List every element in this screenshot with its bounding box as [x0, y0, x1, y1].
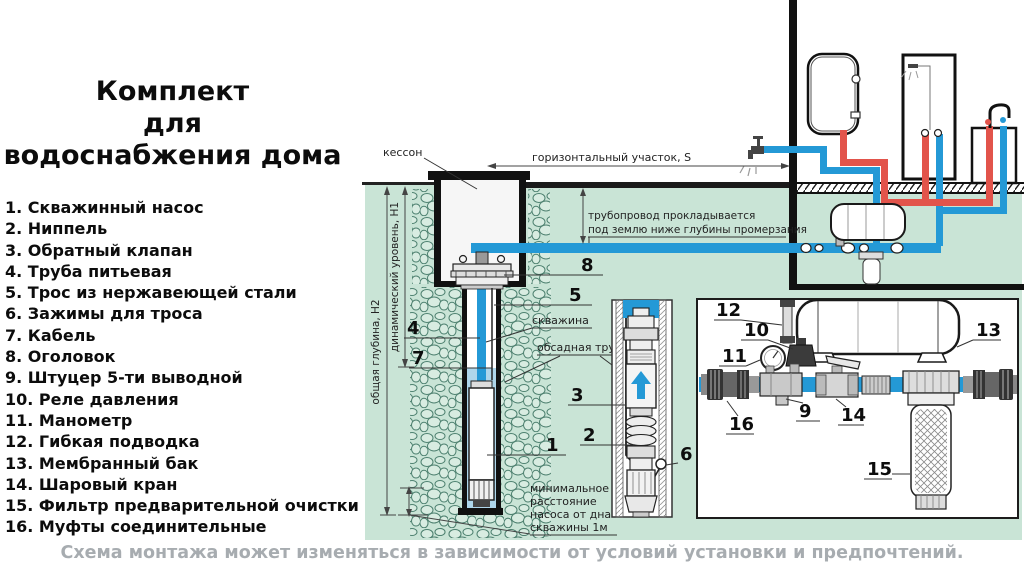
list-item: 13. Мембранный бак — [5, 453, 357, 474]
label-total-depth: общая глубина, Н2 — [370, 299, 382, 404]
callout-11: 11 — [722, 346, 747, 367]
label-pipeline-note: трубопровод прокладывается — [588, 210, 755, 222]
callout-5: 5 — [569, 285, 582, 306]
pressure-tank-basement — [831, 204, 905, 240]
basement-floor-line — [789, 284, 1024, 290]
footer-caption: Схема монтажа может изменяться в зависим… — [0, 543, 1024, 563]
label-pipeline-note: под землю ниже глубины промерзания — [588, 224, 807, 236]
threaded-adapter — [862, 376, 890, 394]
sink-cabinet — [972, 128, 1016, 183]
callout-10: 10 — [744, 320, 769, 341]
filter-basement — [863, 259, 880, 284]
callout-1: 1 — [546, 435, 559, 456]
title-line: водоснабжения дома — [0, 140, 345, 172]
water-heater — [808, 54, 860, 134]
installation-diagram: кессон горизонтальный участок, S трубопр… — [350, 0, 1024, 576]
title-line: для — [0, 108, 345, 140]
list-item: 8. Оголовок — [5, 346, 357, 367]
parts-list: 1. Скважинный насос 2. Ниппель 3. Обратн… — [5, 197, 357, 538]
callout-15: 15 — [867, 459, 892, 480]
label-min-distance: расстояние — [530, 495, 597, 508]
list-item: 10. Реле давления — [5, 389, 357, 410]
label-min-distance: насоса от дна — [530, 508, 611, 521]
outdoor-tap — [740, 136, 764, 176]
list-item: 2. Ниппель — [5, 218, 357, 239]
label-min-distance: скважины 1м — [530, 521, 608, 534]
cable-clamp — [656, 459, 666, 469]
callout-6: 6 — [680, 444, 693, 465]
label-horizontal-section: горизонтальный участок, S — [532, 151, 691, 164]
label-dynamic-level: динамический уровень, Н1 — [389, 202, 401, 352]
callout-3: 3 — [571, 385, 584, 406]
pre-filter — [903, 371, 959, 509]
callout-2: 2 — [583, 425, 596, 446]
list-item: 3. Обратный клапан — [5, 240, 357, 261]
list-item: 1. Скважинный насос — [5, 197, 357, 218]
label-kesson: кессон — [383, 146, 422, 159]
callout-9: 9 — [799, 401, 812, 422]
callout-16: 16 — [729, 414, 754, 435]
infographic-root: Комплект для водоснабжения дома 1. Скваж… — [0, 0, 1024, 576]
callout-4: 4 — [407, 318, 420, 339]
list-item: 4. Труба питьевая — [5, 261, 357, 282]
list-item: 15. Фильтр предварительной очистки — [5, 495, 357, 516]
list-item: 6. Зажимы для троса — [5, 303, 357, 324]
list-item: 9. Штуцер 5-ти выводной — [5, 367, 357, 388]
callout-8: 8 — [581, 255, 594, 276]
label-well: скважина — [532, 314, 589, 327]
title-line: Комплект — [0, 76, 345, 108]
callout-14: 14 — [841, 405, 866, 426]
list-item: 14. Шаровый кран — [5, 474, 357, 495]
nipple — [626, 417, 656, 446]
callout-12: 12 — [716, 300, 741, 321]
well-head — [451, 252, 513, 289]
list-item: 12. Гибкая подводка — [5, 431, 357, 452]
membrane-tank — [797, 300, 959, 354]
pump-detail-panel — [612, 300, 672, 517]
list-item: 5. Трос из нержавеющей стали — [5, 282, 357, 303]
label-min-distance: минимальное — [530, 482, 609, 495]
page-title: Комплект для водоснабжения дома — [0, 76, 345, 172]
callout-13: 13 — [976, 320, 1001, 341]
list-item: 7. Кабель — [5, 325, 357, 346]
list-item: 16. Муфты соединительные — [5, 516, 357, 537]
list-item: 11. Манометр — [5, 410, 357, 431]
callout-7: 7 — [412, 348, 425, 369]
house-wall — [789, 0, 797, 192]
